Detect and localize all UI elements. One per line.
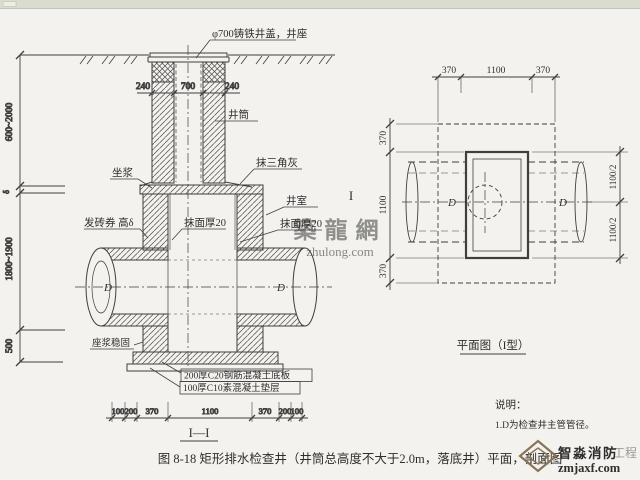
plan-dim-top-1: 1100 (487, 66, 506, 76)
dim-b3: 1100 (202, 406, 219, 416)
dim-b4: 370 (259, 406, 272, 416)
top-strip (0, 0, 640, 9)
plan-dim-top-0: 370 (442, 66, 457, 76)
plan-dim-left-1: 1100 (379, 195, 389, 214)
notes-item-1: 1.D为检查井主管管径。 (495, 419, 595, 431)
plan-section-letter: I (349, 188, 353, 203)
dim-b1: 200 (125, 406, 138, 416)
label-grout-fix: 座浆稳固 (92, 337, 130, 349)
figure-caption: 图 8-18 矩形排水检查井（井筒总高度不大于2.0m，落底井）平面，剖面图 (158, 451, 563, 466)
label-triangle-plaster: 抹三角灰 (256, 156, 298, 169)
chamber-top-slab (140, 185, 263, 194)
label-cover: φ700铸铁井盖，井座 (212, 27, 307, 40)
plan-dim-left-2: 370 (379, 264, 389, 279)
section-mark: I—I (189, 426, 210, 440)
shaft-wall-right (203, 82, 225, 183)
cover-seat-right (203, 62, 225, 82)
label-plaster-left: 抹面厚20 (184, 216, 226, 229)
plan-pipe-d-left: D (447, 197, 456, 209)
dim-base-height: 500 (5, 339, 15, 354)
watermark-center-url: zhulong.com (306, 244, 374, 259)
dim-chamber-height: 1800~1900 (5, 237, 15, 280)
brand-text: 智淼消防 (558, 445, 618, 461)
dim-b2: 370 (146, 406, 159, 416)
drawing-page: 600~2000 δ 1800~1900 500 240 700 240 (0, 0, 640, 480)
dim-shaft-height: 600~2000 (5, 103, 15, 142)
plan-dim-right-lower: 1100/2 (608, 218, 618, 243)
technical-drawing: 600~2000 δ 1800~1900 500 240 700 240 (0, 0, 640, 480)
dim-b5: 200 (279, 406, 292, 416)
watermark-center: 築龍網 zhulong.com (293, 217, 387, 259)
chamber-bottom-right (237, 326, 263, 352)
shaft-wall-left (152, 82, 174, 183)
plan-dim-right-upper: 1100/2 (608, 165, 618, 190)
base-slab (133, 352, 278, 364)
label-chamber: 井室 (286, 194, 307, 207)
plan-dim-left-0: 370 (379, 131, 389, 146)
cover-seat-left (152, 62, 174, 82)
chamber-bottom-left (143, 326, 168, 352)
strip-box (3, 2, 16, 7)
pipe-right-bottom-wall (237, 314, 305, 326)
label-brick-arch: 发砖券 高δ (84, 216, 134, 229)
brand-url: zmjaxf.com (558, 461, 621, 475)
brand-ghost-text: 工程 (613, 445, 637, 460)
pipe-right-top-wall (237, 248, 305, 260)
dim-arch-delta: δ (2, 190, 11, 194)
section-pipe-d-right: D (276, 282, 285, 294)
chamber-wall-left (143, 194, 168, 250)
label-shaft: 井筒 (228, 108, 249, 121)
label-cushion: 100厚C10素混凝土垫层 (183, 382, 280, 394)
section-pipe-d-left: D (103, 282, 112, 294)
plan-dim-top-2: 370 (536, 66, 551, 76)
dim-wall-left: 240 (136, 82, 151, 92)
label-base-slab: 200厚C20钢筋混凝土底板 (184, 370, 291, 382)
label-seat-mortar: 坐浆 (112, 166, 133, 179)
watermark-center-text: 築龍網 (293, 217, 387, 243)
plan-title: 平面图（I型） (457, 338, 530, 352)
notes-heading: 说明： (495, 398, 527, 411)
dim-wall-right: 240 (225, 82, 240, 92)
dim-b6: 100 (291, 406, 304, 416)
plan-pipe-d-right: D (558, 197, 567, 209)
dim-b0: 100 (112, 406, 125, 416)
